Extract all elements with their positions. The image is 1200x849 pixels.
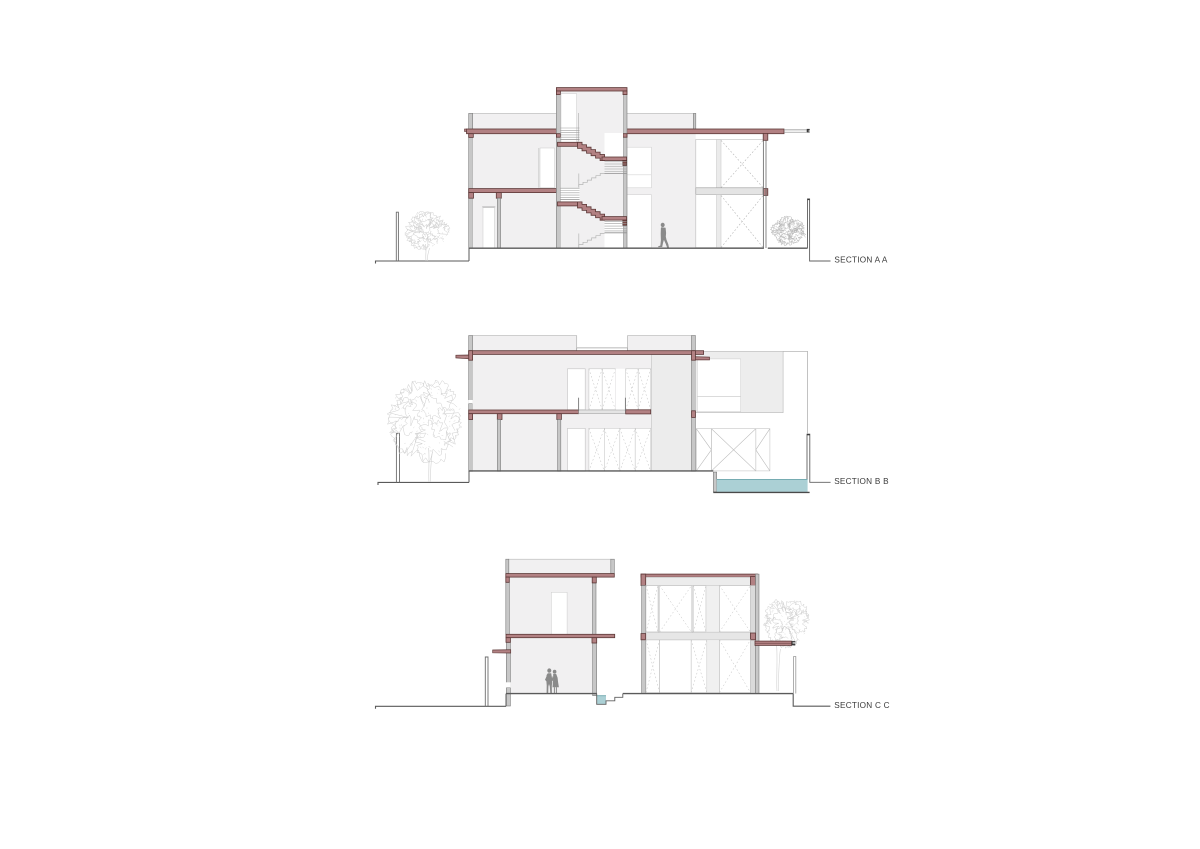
svg-text:SECTION B B: SECTION B B [834, 477, 889, 486]
svg-text:SECTION A A: SECTION A A [834, 256, 888, 265]
svg-text:SECTION C C: SECTION C C [834, 701, 890, 710]
